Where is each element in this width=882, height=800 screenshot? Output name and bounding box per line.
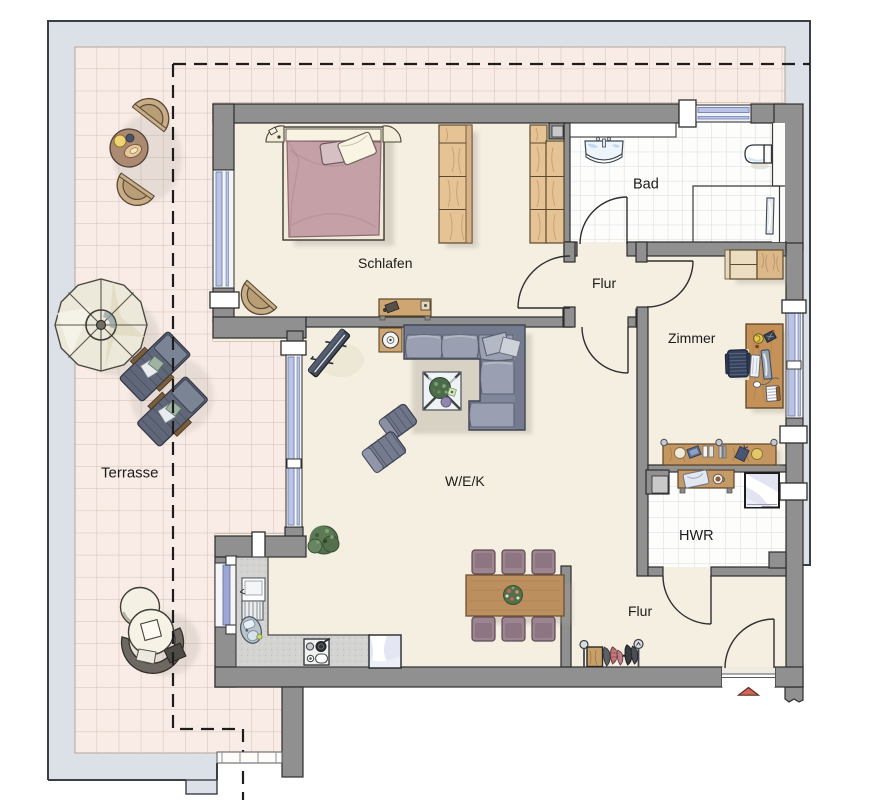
svg-text:Schlafen: Schlafen xyxy=(358,255,412,271)
svg-text:Bad: Bad xyxy=(633,177,659,193)
svg-text:Terrasse: Terrasse xyxy=(101,465,159,482)
svg-text:W/E/K: W/E/K xyxy=(445,473,485,489)
svg-text:Flur: Flur xyxy=(592,275,616,291)
svg-text:Zimmer: Zimmer xyxy=(668,330,716,346)
svg-text:HWR: HWR xyxy=(679,528,714,544)
svg-text:Flur: Flur xyxy=(628,603,652,619)
